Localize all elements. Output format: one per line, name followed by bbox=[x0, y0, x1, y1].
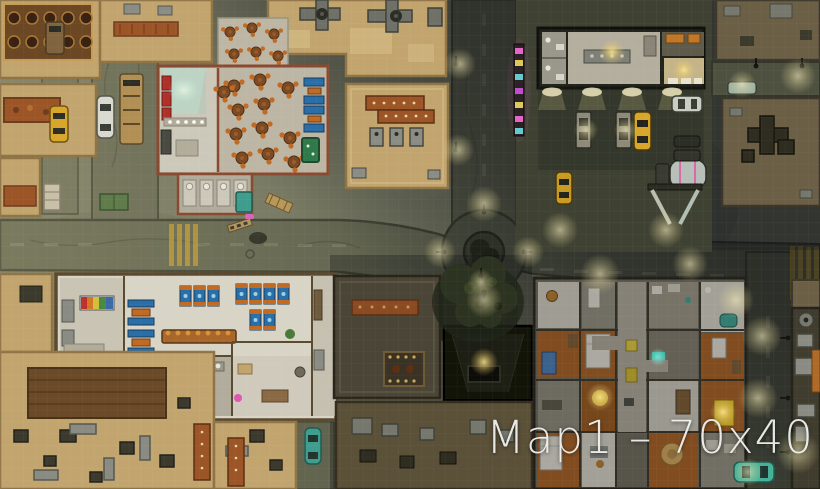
battle-map-image: Map1 – 70x40 bbox=[0, 0, 820, 489]
battle-map-canvas bbox=[0, 0, 820, 489]
battle-grid-overlay bbox=[0, 0, 820, 489]
